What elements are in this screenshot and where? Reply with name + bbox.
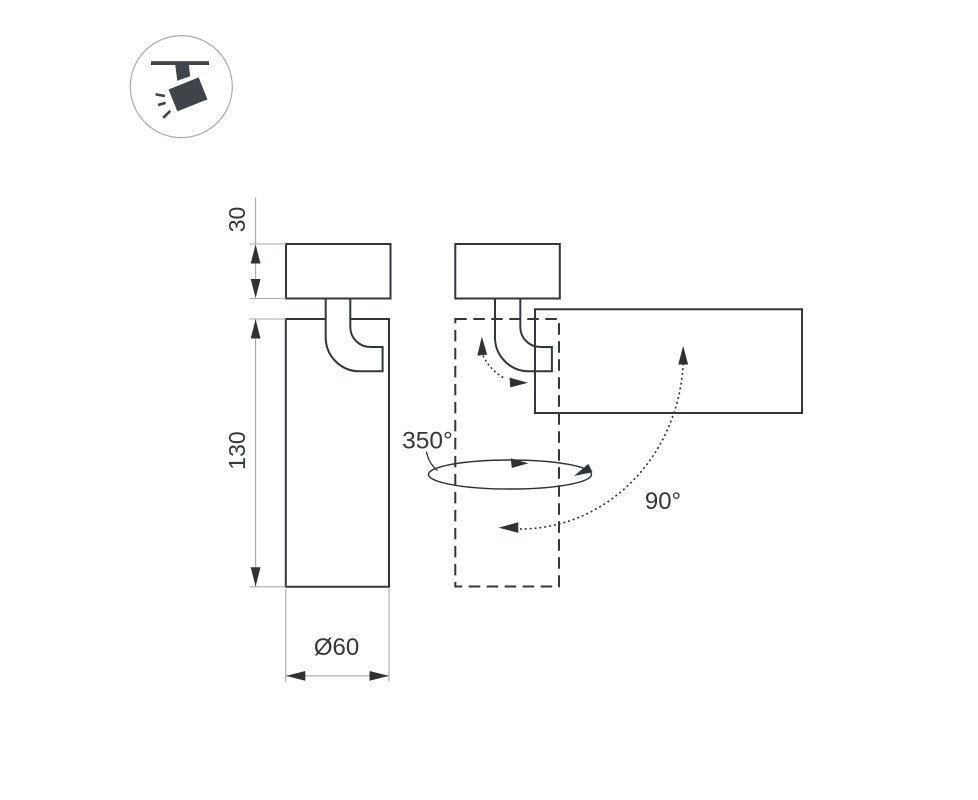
svg-text:350°: 350° — [402, 428, 453, 455]
svg-text:90°: 90° — [645, 488, 681, 515]
svg-text:130: 130 — [224, 431, 250, 469]
svg-text:Ø60: Ø60 — [314, 634, 359, 661]
svg-text:30: 30 — [224, 207, 250, 233]
